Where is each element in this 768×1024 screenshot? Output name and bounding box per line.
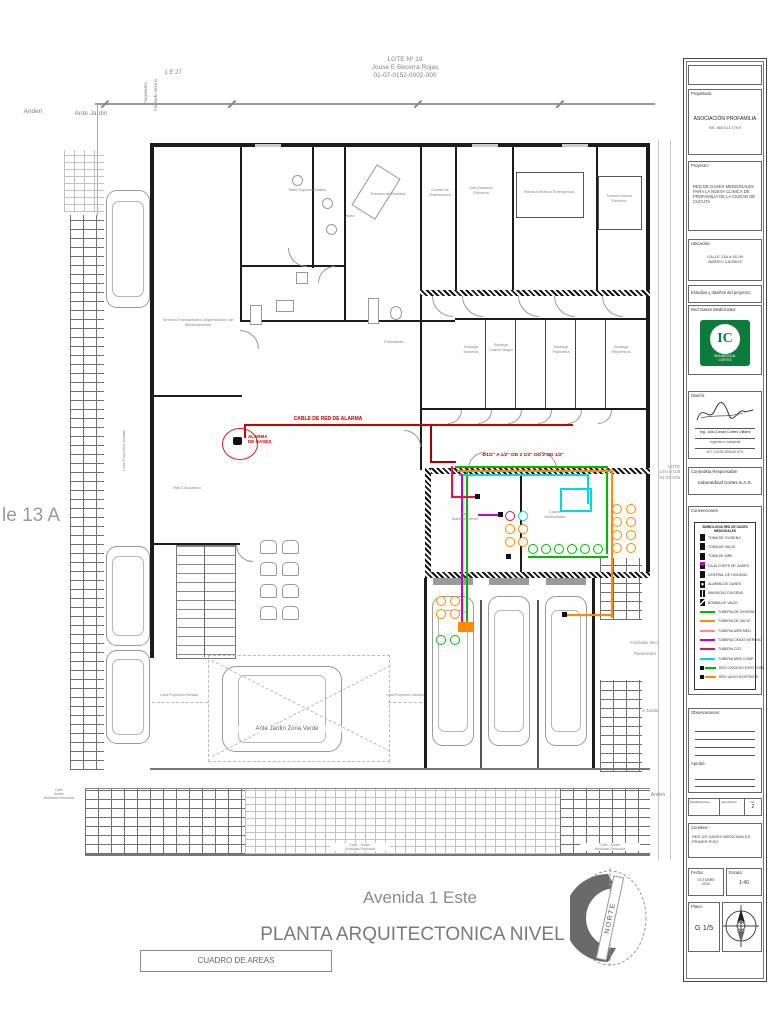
air-loop [560,488,592,512]
legend-row: TUBERIA AIRE MED. [695,626,755,635]
label-fachada-vecino-top: Fachada Vecino [153,56,158,134]
contents-text: RED DE GASES MEDICINALES PRIMER PISO [689,834,761,844]
door-arc [478,410,492,424]
door-arc [554,296,575,317]
projection-label-vertical: Línea Proyección Voladizo [122,400,126,500]
brick-paving-left [70,215,104,770]
chair [282,562,299,576]
revision-col-label: Aprobación [721,800,736,804]
car-body [112,201,143,296]
door-arc [598,410,612,424]
legend-title: SIMBOLOGIA RED DE GASES MEDICINALES [695,523,755,533]
gas-cylinder [505,524,515,534]
gas-cylinder [626,543,636,553]
staircase-rail [204,545,205,657]
legend-row-label: TUBERIA AIRE COMP. [718,657,754,661]
legend-row: TUBERIA AIRE COMP. [695,654,755,663]
ruled-line [695,786,755,787]
location-text: CALLE 13A # 1E-09 BARRIO CAOBOS [689,254,761,264]
zone-valve-icon [700,562,705,569]
room-label: Sub Estación Eléctrica [462,186,500,196]
scale-cell: Escala: 1:40 [726,868,762,896]
gas-cylinder [593,544,603,554]
sidewalk-bottom-line [85,854,650,856]
chair [282,540,299,554]
car-topview [106,650,150,744]
gas-outlet-icon [700,543,705,550]
pipe-swatch [700,658,715,660]
legend-label: Convenciones: [691,508,719,513]
parking-divider [480,600,482,768]
label-fachada-vecino-right: Fachada Veci [626,640,662,645]
projection-label: Línea Proyección Voladizo [372,694,438,698]
room-label: Taller Mantenimiento [448,512,482,522]
legend-row-label: TUBERIA AIRE MED. [718,629,752,633]
legend-row-label: MANIFOLD OXIGENO [708,591,743,595]
signature-line [695,428,755,429]
legend-row-label: TOMA DE AIRE [708,554,733,558]
existing-mark [700,675,704,679]
gas-cylinder [450,635,460,645]
pipe-oxygen [466,470,468,624]
legend-row: BOMBA DE VACIO [695,598,755,607]
legend-row-label: TOMA DE OXIGENO [708,536,741,540]
legend-row: TUBERIA CO2 [695,645,755,654]
manifold-icon [700,590,705,597]
toilet [322,198,333,209]
gas-cylinder [505,511,515,521]
counter [368,298,379,324]
titleblock-panel: Propietario: ASOCIACIÓN PROFAMILIA NIT. … [683,58,767,982]
car-body [551,610,581,731]
gas-cylinder [612,543,622,553]
car-topview [545,596,587,746]
revision-col-number: No. 2 [745,799,761,815]
contractor-box: Contratista Responsable: Indumedical Cor… [688,467,762,495]
legend-row: CENTRAL DE OXIGENO [695,570,755,579]
wall [512,147,514,295]
studies-strip: Estudios y diseños del proyecto: [688,285,762,303]
drawing-sheet: LOTE Nº 19 Jouse E Becerra Rojas 01-07-0… [0,0,768,1024]
gas-cylinder [626,517,636,527]
parking-wall [592,578,595,768]
pipe-swatch [700,620,715,622]
door-arc [448,410,462,424]
project-box: Proyecto: RED DE GASES MEDICINALES PARA … [688,161,762,231]
alarm-cable-line [245,424,573,426]
wall [240,147,242,320]
wall [150,395,242,397]
chair [260,606,277,620]
scale-value: 1:40 [727,880,761,886]
toilet [292,175,303,186]
gas-outlet-icon [700,553,705,560]
lot-header: LOTE Nº 19 Jouse E Becerra Rojas 01-07-0… [330,56,480,79]
gas-cylinder [436,609,446,619]
pipe-oxygen [455,466,608,468]
pipe-air [459,474,589,476]
sheet-cell: Plano: G 1/5 [688,902,720,952]
legend-row-label: TUBERIA DE OXIGENO [718,610,756,614]
gas-cylinder [626,530,636,540]
vacuum-outlet-box [458,622,474,632]
car-body [494,610,524,731]
dimension-line-right-1 [658,140,659,860]
legend-row: RED OXIGENO EXISTENTE [695,663,755,672]
room-label: Planta Eléctrica Emergencia [520,190,578,195]
staircase [176,545,236,659]
pipe-swatch [700,639,715,641]
car-topview [106,546,150,646]
pipe-vacuum [457,470,613,472]
wall [455,147,457,295]
wall [344,147,346,320]
room-label: Hall Circulación [170,486,204,491]
ic-logo-text: IC [717,331,733,346]
window [562,144,588,147]
pipe-swatch [700,648,715,650]
room-label: Bodega Insumos [458,345,484,355]
door-arc [236,545,253,562]
designer-label: Diseñó: [691,393,705,398]
legend-row: TOMA DE VACIO [695,542,755,551]
ruled-line [695,779,755,780]
gas-contractor-box: Red Gases Medicinales: IC INDUMEDICAL CO… [688,305,762,375]
label-ante-jardin-top: Ante Jardin [66,110,116,118]
gas-cylinder [612,517,622,527]
divider [695,448,755,449]
revision-table: Modificaciones Aprobación No. 2 [688,798,762,816]
dimension-line-right-2 [670,140,671,860]
car-topview [488,596,530,746]
titleblock-top-strip [688,65,762,85]
door-arc [404,430,421,447]
sheet-number: G 1/5 [689,923,719,932]
project-label: Proyecto: [691,163,709,168]
legend-row-label: TUBERIA DE VACIO [718,619,750,623]
signature [693,400,757,426]
gas-cylinder [612,530,622,540]
observations-label: Observaciones: [691,710,720,715]
scale-label: Escala: [729,870,743,875]
door-arc [518,296,539,317]
wall [240,320,455,322]
legend-row-label: RED VACIO EXISTENTE [719,675,758,679]
ic-logo-circle: IC [710,324,740,354]
legend-row: TUBERIA DE VACIO [695,617,755,626]
legend-row: TOMA DE OXIGENO [695,533,755,542]
legend-row-label: CAJA CORTE DE GASES [708,564,749,568]
projection-line [152,702,208,703]
wall-left [150,143,154,658]
gas-cylinder [612,504,622,514]
revision-col-label: Modificaciones [690,800,710,804]
door-arc [318,266,335,283]
room-label: Polivalente [374,340,414,345]
room-label: Entrada de Botellas [366,192,410,197]
paving-ramp [64,150,104,212]
ruled-line [695,731,755,732]
cabinet [296,272,308,284]
room-label: Cuarto de Subestación [425,188,455,198]
car-topview [106,190,150,308]
pipe-swatch [705,676,716,678]
compass-cell [722,902,762,952]
sheet-label: Plano: [691,904,703,909]
pipe-vacuum [566,614,611,616]
gas-cylinder [541,544,551,554]
valve [562,612,567,617]
chair [282,584,299,598]
designer-title: Ingeniero Industrial [689,440,761,444]
door-arc [602,296,623,317]
gas-cylinder [505,537,515,547]
alarm-cable-branch [430,461,456,463]
location-label: Ubicación: [691,241,711,246]
gas-cylinder [518,524,528,534]
location-box: Ubicación: CALLE 13A # 1E-09 BARRIO CAOB… [688,239,762,281]
contents-box: Contiene: RED DE GASES MEDICINALES PRIME… [688,823,762,858]
approved-label: Aprobó: [691,761,706,766]
gas-outlet-icon [700,534,705,541]
pipe-co2 [451,466,453,498]
partition [575,320,576,408]
owner-label: Propietario: [691,91,712,96]
owner-name: ASOCIACIÓN PROFAMILIA [689,116,761,122]
revision-version: 2 [746,804,760,810]
room-label: Transformador Eléctrico [602,194,636,204]
partition [515,320,516,408]
designer-name: Ing. Julio Cesar Cortes Villami [689,430,761,434]
pipe-size-note: Ø1/2" A 1/2" OD 2 1/2" OD 2 OD 1/2" [448,453,598,459]
room-label: Servicio Farmacéutico Dispensación de Me… [162,318,234,328]
legend-row: ALARMA DE GASES [695,579,755,588]
car-body [112,659,143,734]
legend-row-label: CENTRAL DE OXIGENO [708,573,747,577]
legend-row: TOMA DE AIRE [695,552,755,561]
gas-cylinder [450,596,460,606]
window [472,144,498,147]
north-compass: NORTE [570,868,650,968]
pipe-oxygen [606,466,608,554]
alarm-device-icon [233,437,242,445]
door-arc [568,410,582,424]
revision-col-approval: Aprobación [720,799,744,815]
partition [545,320,546,408]
ruled-line [695,755,755,756]
plan-bottom-line [150,768,650,770]
gas-cylinder [580,544,590,554]
equipment-box [516,172,584,218]
gas-cylinder [450,609,460,619]
chair [260,584,277,598]
date-value: OCTUBRE 2020 [689,878,723,886]
parking-divider [537,600,539,768]
contents-label: Contiene: [691,825,709,830]
wall [455,318,646,320]
chair [260,562,277,576]
contractor-label: Contratista Responsable: [691,469,738,474]
pipe-oxygen [528,556,608,558]
pipe-swatch [700,611,715,613]
existing-mark [700,666,704,670]
divider [695,438,755,439]
vacuum-pump-icon [700,599,705,606]
wall-right [646,143,650,578]
chair [282,606,299,620]
door-arc [240,330,259,349]
central-icon [700,571,705,578]
valve [498,512,503,517]
room-label: Taller Experimentales [283,188,331,193]
alarm-icon [700,581,705,588]
owner-box: Propietario: ASOCIACIÓN PROFAMILIA NIT. … [688,89,762,155]
ruled-line [695,739,755,740]
legend-row-label: BOMBA DE VACIO [708,601,738,605]
desk [276,300,294,312]
desk [250,305,262,325]
wall [312,147,314,268]
door-arc [432,296,453,317]
projection-line [388,702,422,703]
legend-row: TUBERIA DE OXIGENO [695,607,755,616]
room-label: Bodega Cuarto Negro [488,343,514,353]
sidewalk-label-right: Calle - Anden Movilidad Reducida [580,843,640,851]
owner-nit: NIT. 860.013.779-9 [689,126,761,130]
toilet [326,224,337,235]
car-body [112,556,143,636]
legend-row: RED VACIO EXISTENTE [695,672,755,681]
sidewalk-label-center: Calle - Anden Movilidad Reducida [330,843,390,851]
alarm-device-label: ALARMA DE GASES [248,434,292,445]
room-label: Bodega Papelería [548,345,574,355]
door-arc [538,410,552,424]
label-paramento-top: Paramento [143,58,148,128]
pipe-swatch [700,630,715,632]
areas-box: CUADRO DE AREAS [140,950,332,972]
project-text: RED DE GASES MEDICINALES PARA LA NUEVA C… [689,184,761,204]
legend-row-label: ALARMA DE GASES [708,582,741,586]
gas-cylinder [528,544,538,554]
label-anden-top: Anden [16,108,50,116]
sidewalk-brick-left [85,788,245,854]
gas-cylinder [567,544,577,554]
sidewalk-label-left: Calle Anden Movilidad Reducida [36,788,82,801]
wall [520,474,522,572]
pipe-swatch [705,667,716,669]
ruled-line [695,747,755,748]
legend-row-label: TOMA DE VACIO [708,545,735,549]
legend-row: TUBERIA OXIDO NITROSO [695,635,755,644]
gas-cylinder [626,504,636,514]
wall [420,147,422,295]
gas-contractor-label: Red Gases Medicinales: [691,307,736,312]
wall-hatched [425,468,431,578]
parking-wall [424,578,427,768]
door-arc [508,410,522,424]
brick-paving-right-bottom [600,680,642,772]
sidewalk-top-line [85,788,650,789]
ic-logo-sub: INDUMEDICAL CORTES [700,354,750,362]
alarm-cable-label: CABLE DE RED DE ALARMA [268,416,388,422]
plan-title: PLANTA ARQUITECTONICA NIVEL 1 [220,924,620,947]
ic-logo: IC INDUMEDICAL CORTES [700,320,750,366]
gas-cylinder [518,511,528,521]
label-paramento-right: Paramento [628,651,662,656]
legend-row-label: TUBERIA OXIDO NITROSO [718,638,762,642]
legend-row: MANIFOLD OXIGENO [695,589,755,598]
projection-label: Línea Proyección Fachada [146,694,212,698]
partition [605,320,606,408]
door-arc [462,296,483,317]
date-cell: Fecha: OCTUBRE 2020 [688,868,724,896]
scale-ref: 1 E 27 [158,70,188,77]
contractor-name: Indumedical Cortes S.A.S. [689,480,761,485]
gas-cylinder [436,635,446,645]
observations-box: Observaciones: Aprobó: [688,708,762,793]
room-label: Bodega Repuestos [608,345,634,355]
gas-cylinder [518,537,528,547]
legend-inner: SIMBOLOGIA RED DE GASES MEDICINALES TOMA… [694,522,756,690]
designer-box: Diseñó: Ing. Julio Cesar Cortes Villami … [688,391,762,459]
garden-label: Ante Jardin Zona Verde [232,726,342,733]
legend-row: CAJA CORTE DE GASES [695,561,755,570]
valve [506,554,511,559]
legend-row-label: RED OXIGENO EXISTENTE [719,666,764,670]
areas-box-label: CUADRO DE AREAS [141,956,331,966]
partition [485,320,486,408]
parking-bumper [546,578,586,585]
sink [390,306,402,320]
designer-reg: M.P. 54228-298445 NTS [689,450,761,454]
room-label: Cuarto Medicinales [538,510,572,520]
room-label: Aseo [340,214,360,219]
titleblock-compass-icon [723,903,759,949]
legend-row-label: TUBERIA CO2 [718,647,741,651]
date-label: Fecha: [691,870,704,875]
studies-label: Estudios y diseños del proyecto: [691,290,751,295]
parking-bumper [489,578,529,585]
gas-cylinder [436,596,446,606]
gas-cylinder [554,544,564,554]
dimension-line-top [95,103,655,105]
valve [475,494,480,499]
window [255,144,281,147]
chair [260,540,277,554]
north-compass-graphic: NORTE [570,868,650,968]
street-title: Avenida 1 Este [270,888,570,908]
legend-box: Convenciones: SIMBOLOGIA RED DE GASES ME… [688,506,762,695]
brick-paving-right-top [600,558,642,620]
revision-col-modifications: Modificaciones [689,799,720,815]
alarm-cable-drop [430,425,432,463]
